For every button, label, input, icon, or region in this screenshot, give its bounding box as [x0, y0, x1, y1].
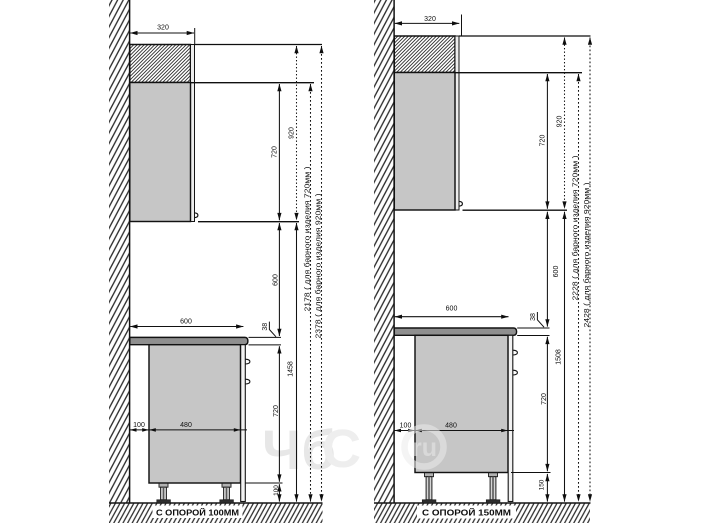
svg-text:920: 920: [557, 116, 564, 128]
svg-text:С ОПОРОЙ 100ММ: С ОПОРОЙ 100ММ: [156, 506, 239, 517]
svg-text:С: С: [322, 419, 361, 479]
svg-text:2378 ( для барного изделия 920: 2378 ( для барного изделия 920мм ): [315, 194, 323, 339]
svg-text:320: 320: [157, 25, 169, 32]
svg-text:1458: 1458: [288, 361, 295, 377]
svg-text:38: 38: [262, 323, 269, 331]
svg-text:2428 ( для барного изделия 920: 2428 ( для барного изделия 920мм ): [583, 183, 591, 328]
svg-text:920: 920: [289, 127, 296, 139]
svg-text:320: 320: [424, 16, 436, 23]
svg-text:600: 600: [273, 274, 280, 286]
svg-text:720: 720: [541, 393, 548, 405]
svg-text:480: 480: [180, 422, 192, 429]
svg-text:600: 600: [553, 266, 560, 278]
svg-text:720: 720: [273, 405, 280, 417]
svg-text:1508: 1508: [556, 349, 563, 365]
svg-text:720: 720: [540, 135, 547, 147]
svg-text:100: 100: [400, 423, 412, 430]
svg-text:38: 38: [530, 313, 537, 321]
svg-text:2228 ( для барного изделия 720: 2228 ( для барного изделия 720мм ): [572, 156, 580, 301]
svg-text:С ОПОРОЙ 150ММ: С ОПОРОЙ 150ММ: [422, 506, 511, 517]
svg-text:600: 600: [180, 318, 192, 325]
svg-text:ru: ru: [412, 434, 437, 462]
svg-text:480: 480: [445, 423, 457, 430]
svg-text:600: 600: [446, 305, 458, 312]
svg-text:100: 100: [133, 422, 145, 429]
svg-text:100: 100: [273, 485, 280, 496]
svg-text:720: 720: [272, 146, 279, 158]
svg-text:150: 150: [539, 479, 546, 490]
svg-text:2178 ( для барного изделия 720: 2178 ( для барного изделия 720мм ): [304, 167, 312, 312]
